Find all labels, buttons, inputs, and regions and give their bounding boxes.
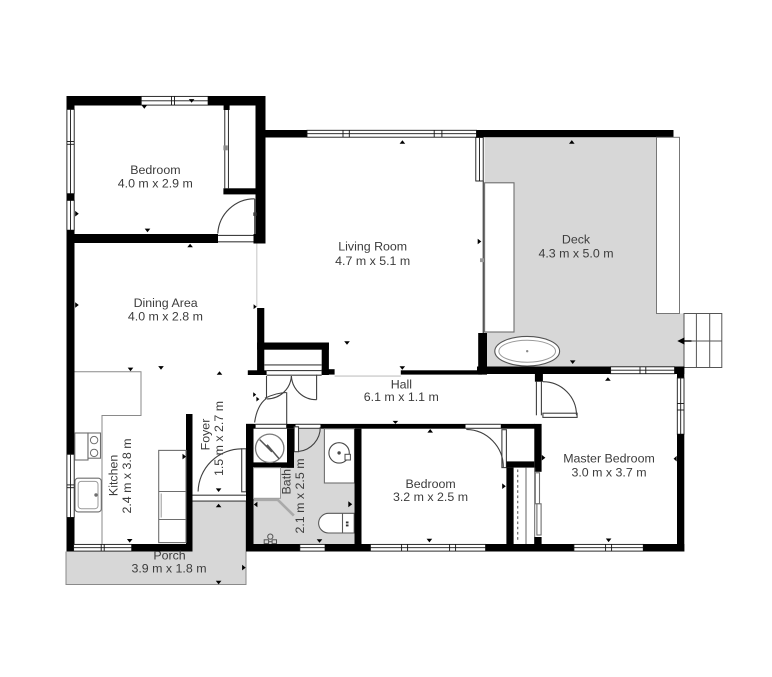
svg-text:2.1 m x 2.5 m: 2.1 m x 2.5 m [293, 458, 307, 533]
svg-text:4.0 m x 2.9 m: 4.0 m x 2.9 m [118, 177, 193, 191]
svg-text:Bath: Bath [280, 469, 294, 495]
svg-text:1.5 m x 2.7 m: 1.5 m x 2.7 m [212, 401, 226, 476]
svg-text:Bedroom: Bedroom [130, 163, 180, 177]
svg-text:3.9 m x 1.8 m: 3.9 m x 1.8 m [131, 562, 206, 576]
svg-text:Master Bedroom: Master Bedroom [563, 452, 655, 466]
svg-text:4.0 m x 2.8 m: 4.0 m x 2.8 m [128, 310, 203, 324]
svg-text:Deck: Deck [562, 233, 591, 247]
svg-text:Dining Area: Dining Area [134, 296, 198, 310]
svg-text:2.4 m x 3.8 m: 2.4 m x 3.8 m [120, 438, 134, 513]
svg-text:Bedroom: Bedroom [405, 477, 455, 491]
svg-text:6.1 m x 1.1 m: 6.1 m x 1.1 m [364, 390, 439, 404]
svg-text:4.3 m x 5.0 m: 4.3 m x 5.0 m [538, 246, 613, 260]
svg-text:Hall: Hall [391, 377, 412, 391]
svg-text:Kitchen: Kitchen [106, 455, 120, 496]
svg-text:Porch: Porch [153, 549, 185, 563]
svg-text:3.0 m x 3.7 m: 3.0 m x 3.7 m [571, 465, 646, 479]
svg-text:4.7 m x 5.1 m: 4.7 m x 5.1 m [335, 254, 410, 268]
svg-text:Foyer: Foyer [199, 419, 213, 451]
svg-text:Living Room: Living Room [338, 240, 407, 254]
svg-text:3.2 m x 2.5 m: 3.2 m x 2.5 m [393, 490, 468, 504]
